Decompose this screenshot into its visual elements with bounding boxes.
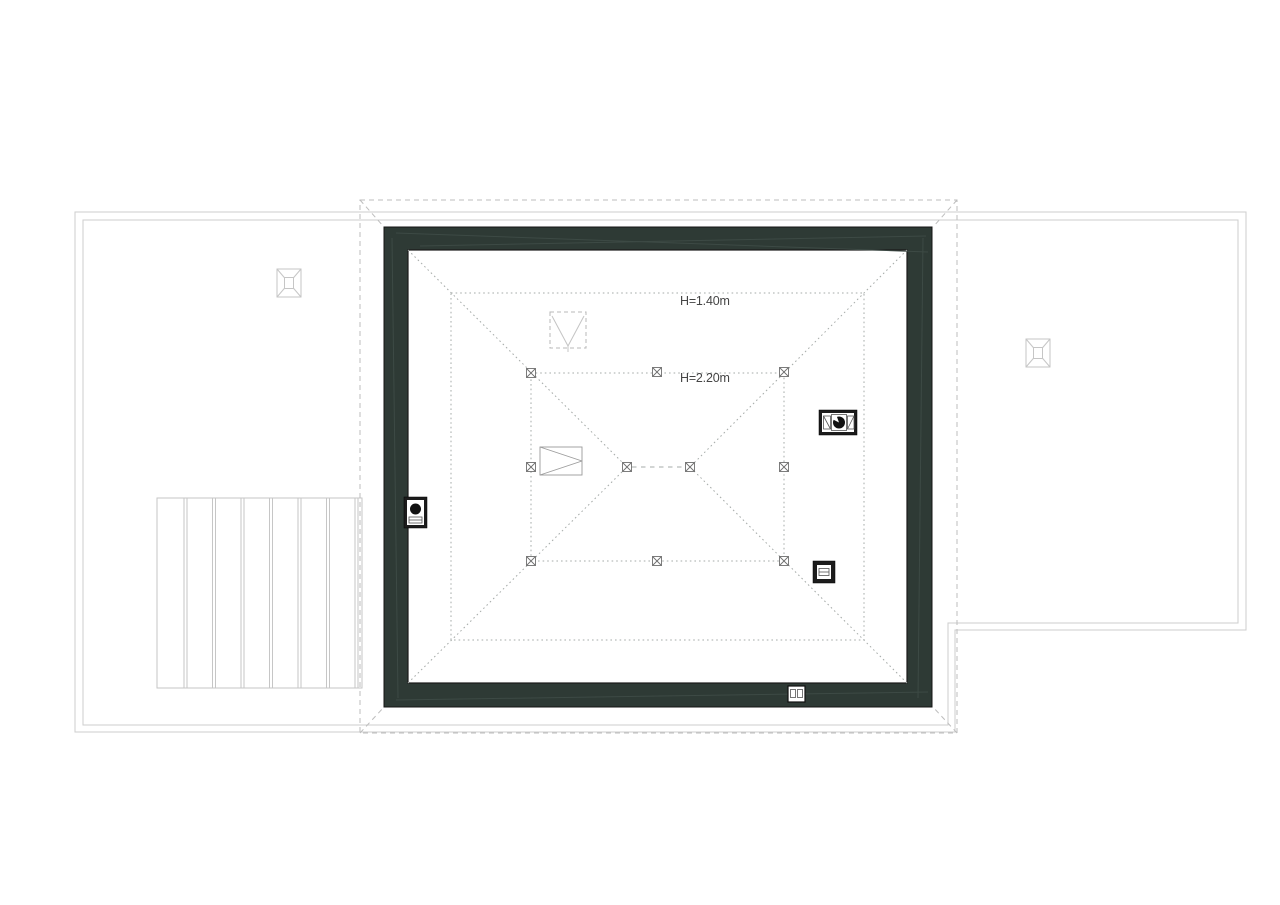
attic-room-interior bbox=[408, 250, 907, 683]
post-marker-icon bbox=[527, 557, 536, 566]
window-opening-icon bbox=[540, 447, 582, 475]
deck-plank-lines bbox=[184, 498, 358, 688]
post-marker-icon bbox=[686, 463, 695, 472]
post-marker-icon bbox=[780, 368, 789, 377]
height-label-140: H=1.40m bbox=[680, 294, 730, 308]
post-marker-icon bbox=[623, 463, 632, 472]
roof-window-icon bbox=[1026, 339, 1050, 367]
attic-walls bbox=[384, 227, 932, 707]
wall-vent-icon bbox=[788, 686, 805, 702]
post-marker-icon bbox=[780, 557, 789, 566]
post-marker-icon bbox=[653, 557, 662, 566]
post-marker-icon bbox=[780, 463, 789, 472]
deck-outline bbox=[157, 498, 362, 688]
vent-box-icon bbox=[813, 561, 835, 583]
deck-planks bbox=[157, 498, 362, 688]
eave-hip-stub bbox=[360, 707, 384, 733]
eave-hip-stub bbox=[360, 200, 384, 227]
chimney-icon bbox=[404, 497, 427, 528]
roof-window-icon bbox=[277, 269, 301, 297]
post-marker-icon bbox=[653, 368, 662, 377]
post-marker-icon bbox=[527, 463, 536, 472]
post-marker-icon bbox=[527, 369, 536, 378]
floor-plan-svg: H=1.40m H=2.20m bbox=[0, 0, 1280, 905]
eave-hip-stub bbox=[933, 707, 957, 733]
floor-plan-page: H=1.40m H=2.20m bbox=[0, 0, 1280, 905]
height-label-220: H=2.20m bbox=[680, 371, 730, 385]
eave-hip-stub bbox=[933, 200, 957, 227]
fan-unit-icon bbox=[819, 410, 857, 435]
